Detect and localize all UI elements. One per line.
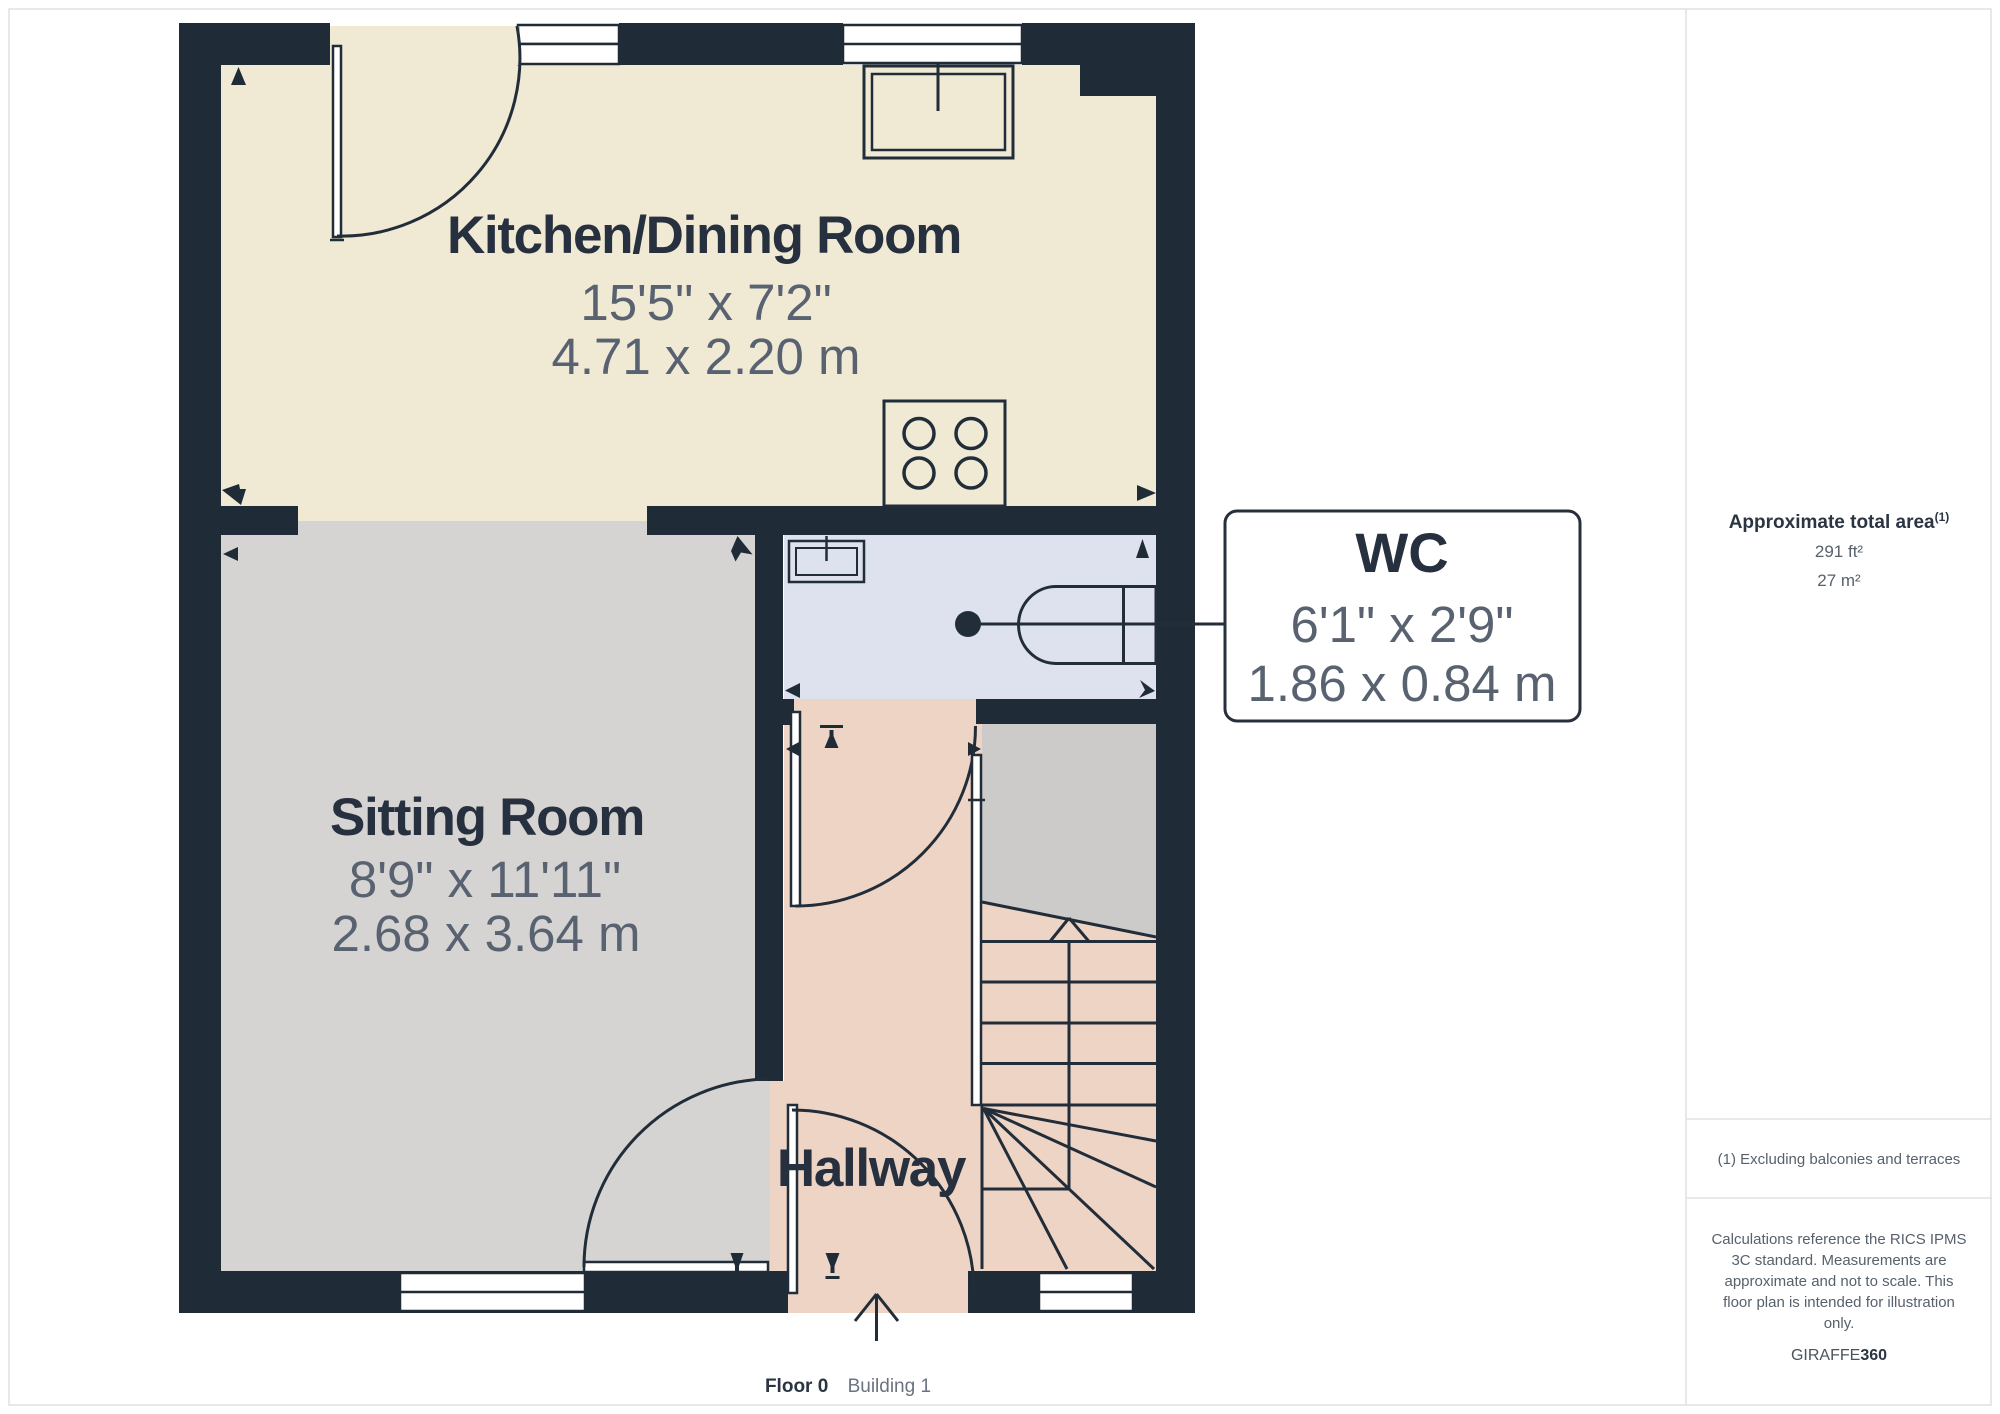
svg-text:Calculations reference the RIC: Calculations reference the RICS IPMS [1711,1231,1966,1248]
svg-text:(1) Excluding balconies and te: (1) Excluding balconies and terraces [1718,1151,1961,1168]
svg-text:15'5" x 7'2": 15'5" x 7'2" [580,274,831,331]
svg-text:4.71 x 2.20 m: 4.71 x 2.20 m [551,328,860,385]
svg-text:291 ft²: 291 ft² [1815,542,1864,561]
svg-text:floor plan is intended for ill: floor plan is intended for illustration [1723,1294,1955,1311]
svg-text:27 m²: 27 m² [1817,571,1861,590]
svg-text:1.86 x 0.84 m: 1.86 x 0.84 m [1247,655,1556,712]
svg-text:3C standard. Measurements are: 3C standard. Measurements are [1731,1252,1946,1269]
svg-text:8'9" x 11'11": 8'9" x 11'11" [349,851,621,908]
svg-text:GIRAFFE360: GIRAFFE360 [1791,1347,1887,1364]
svg-text:Hallway: Hallway [777,1139,967,1198]
svg-text:Floor 0 Building 1: Floor 0 Building 1 [765,1376,931,1397]
svg-text:WC: WC [1355,521,1448,584]
svg-text:only.: only. [1824,1315,1855,1332]
svg-text:Sitting Room: Sitting Room [330,788,644,847]
svg-text:6'1" x 2'9": 6'1" x 2'9" [1291,596,1514,653]
svg-text:2.68 x 3.64 m: 2.68 x 3.64 m [331,905,640,962]
svg-text:Kitchen/Dining Room: Kitchen/Dining Room [447,206,961,265]
svg-text:Approximate total area(1): Approximate total area(1) [1729,510,1950,533]
svg-text:approximate and not to scale.: approximate and not to scale. This [1724,1273,1953,1290]
